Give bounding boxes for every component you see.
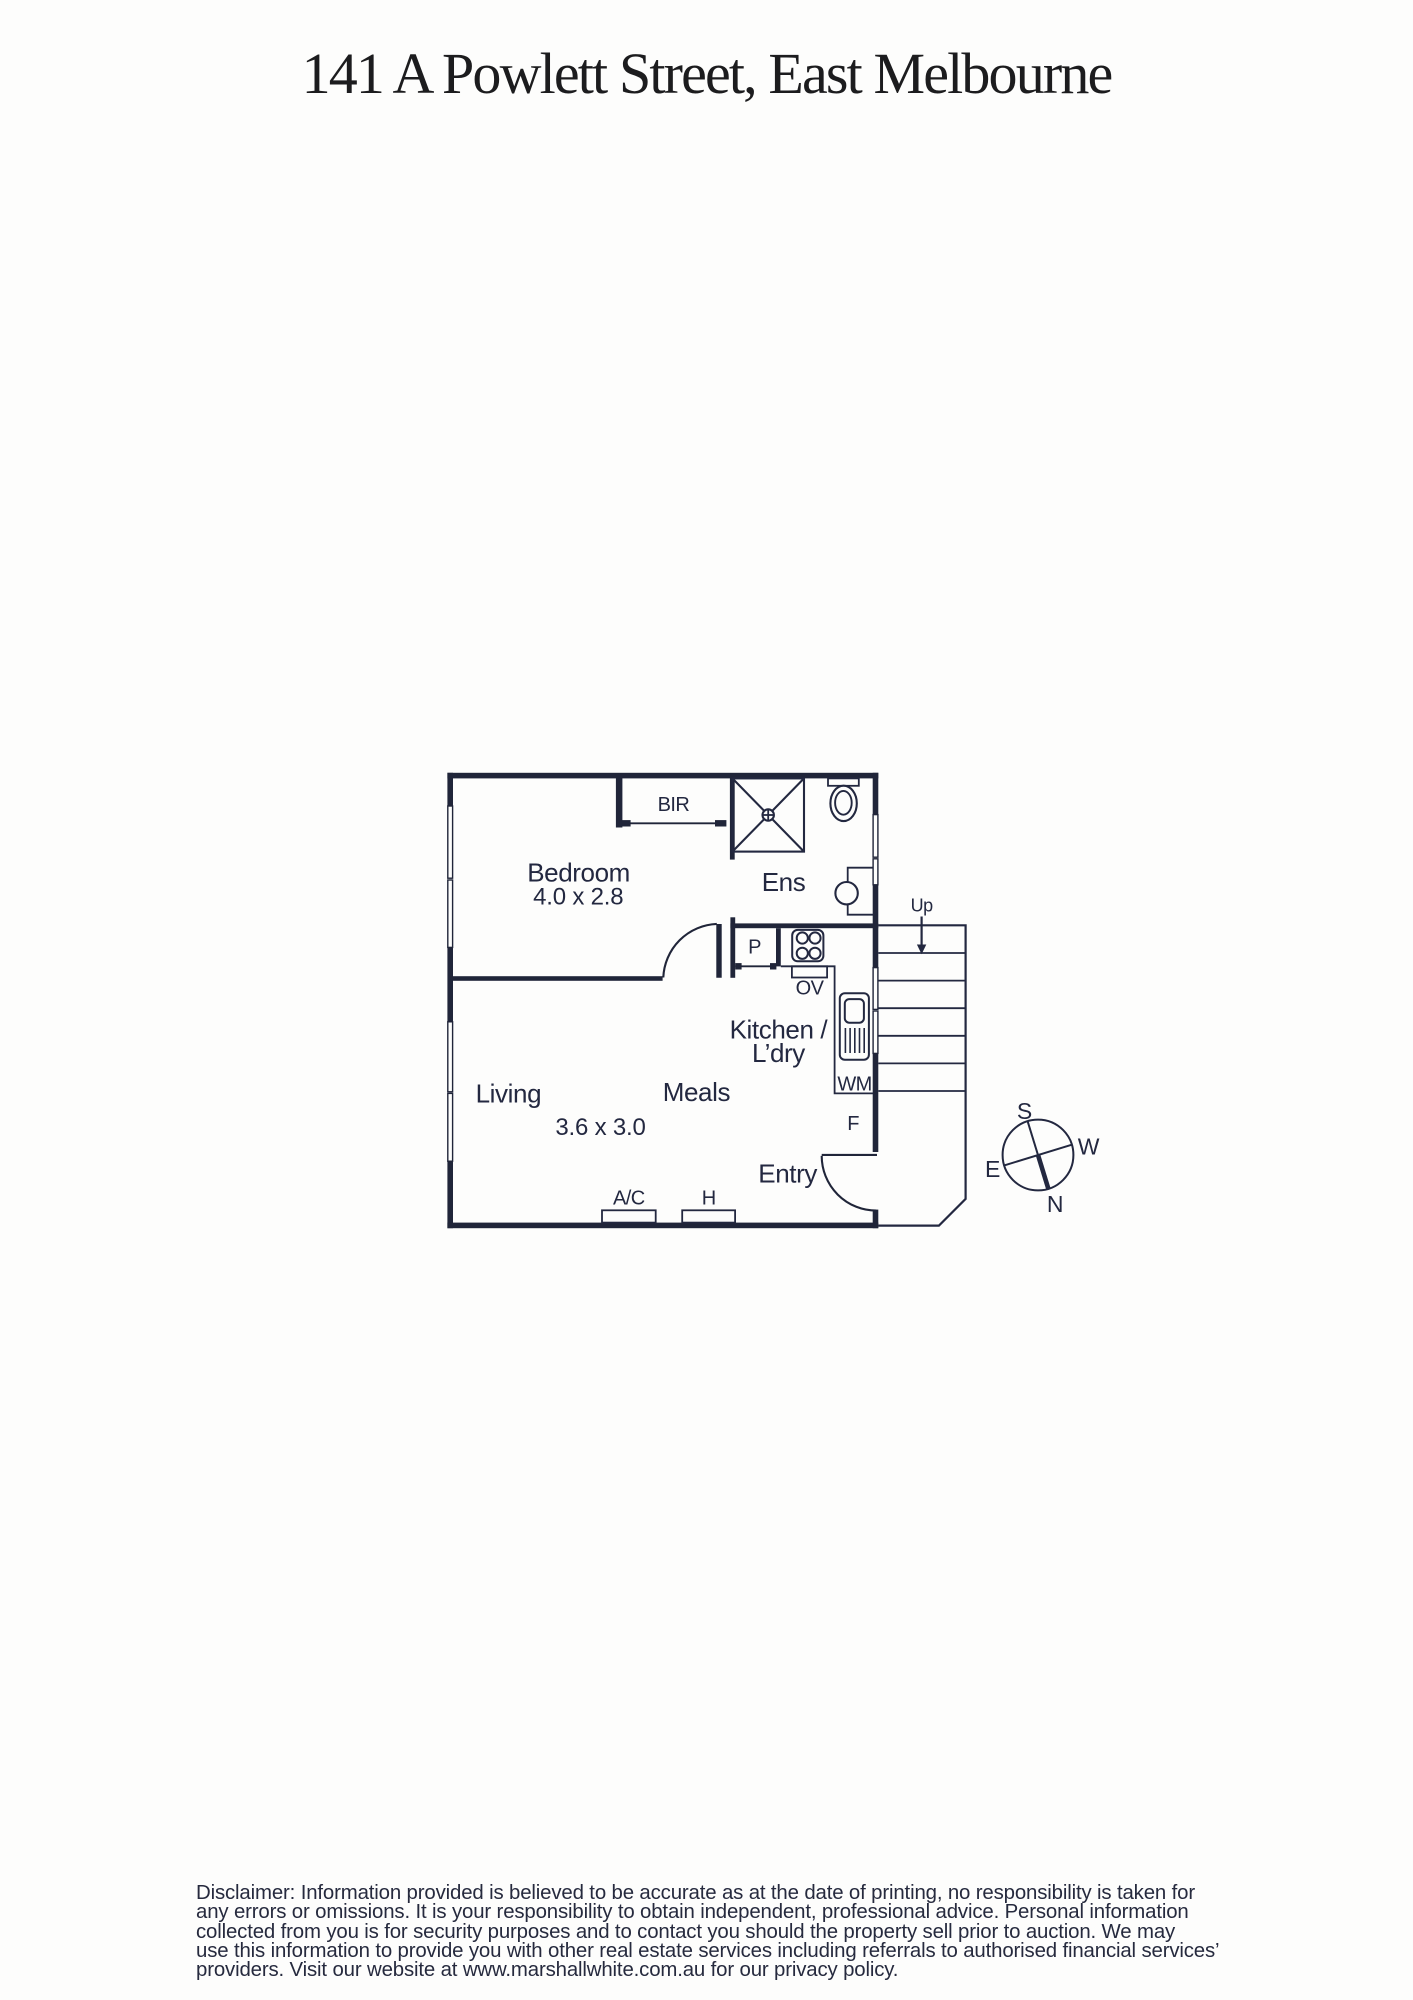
svg-text:WM: WM: [837, 1074, 871, 1096]
svg-text:4.0 x 2.8: 4.0 x 2.8: [533, 883, 623, 910]
svg-text:L’dry: L’dry: [752, 1038, 805, 1068]
svg-text:OV: OV: [796, 977, 825, 999]
svg-text:N: N: [1047, 1191, 1064, 1217]
svg-text:W: W: [1078, 1134, 1100, 1160]
svg-text:Meals: Meals: [663, 1077, 731, 1107]
svg-text:Ens: Ens: [762, 867, 806, 897]
svg-text:Living: Living: [476, 1078, 542, 1108]
svg-text:E: E: [985, 1156, 1000, 1182]
svg-text:BIR: BIR: [658, 794, 690, 816]
svg-text:P: P: [748, 937, 761, 959]
svg-text:A/C: A/C: [613, 1187, 645, 1209]
svg-text:3.6 x 3.0: 3.6 x 3.0: [555, 1114, 645, 1141]
svg-text:Entry: Entry: [758, 1158, 817, 1188]
svg-text:H: H: [702, 1187, 716, 1209]
svg-text:S: S: [1017, 1098, 1032, 1124]
svg-text:F: F: [847, 1113, 859, 1135]
svg-text:Up: Up: [911, 896, 933, 916]
